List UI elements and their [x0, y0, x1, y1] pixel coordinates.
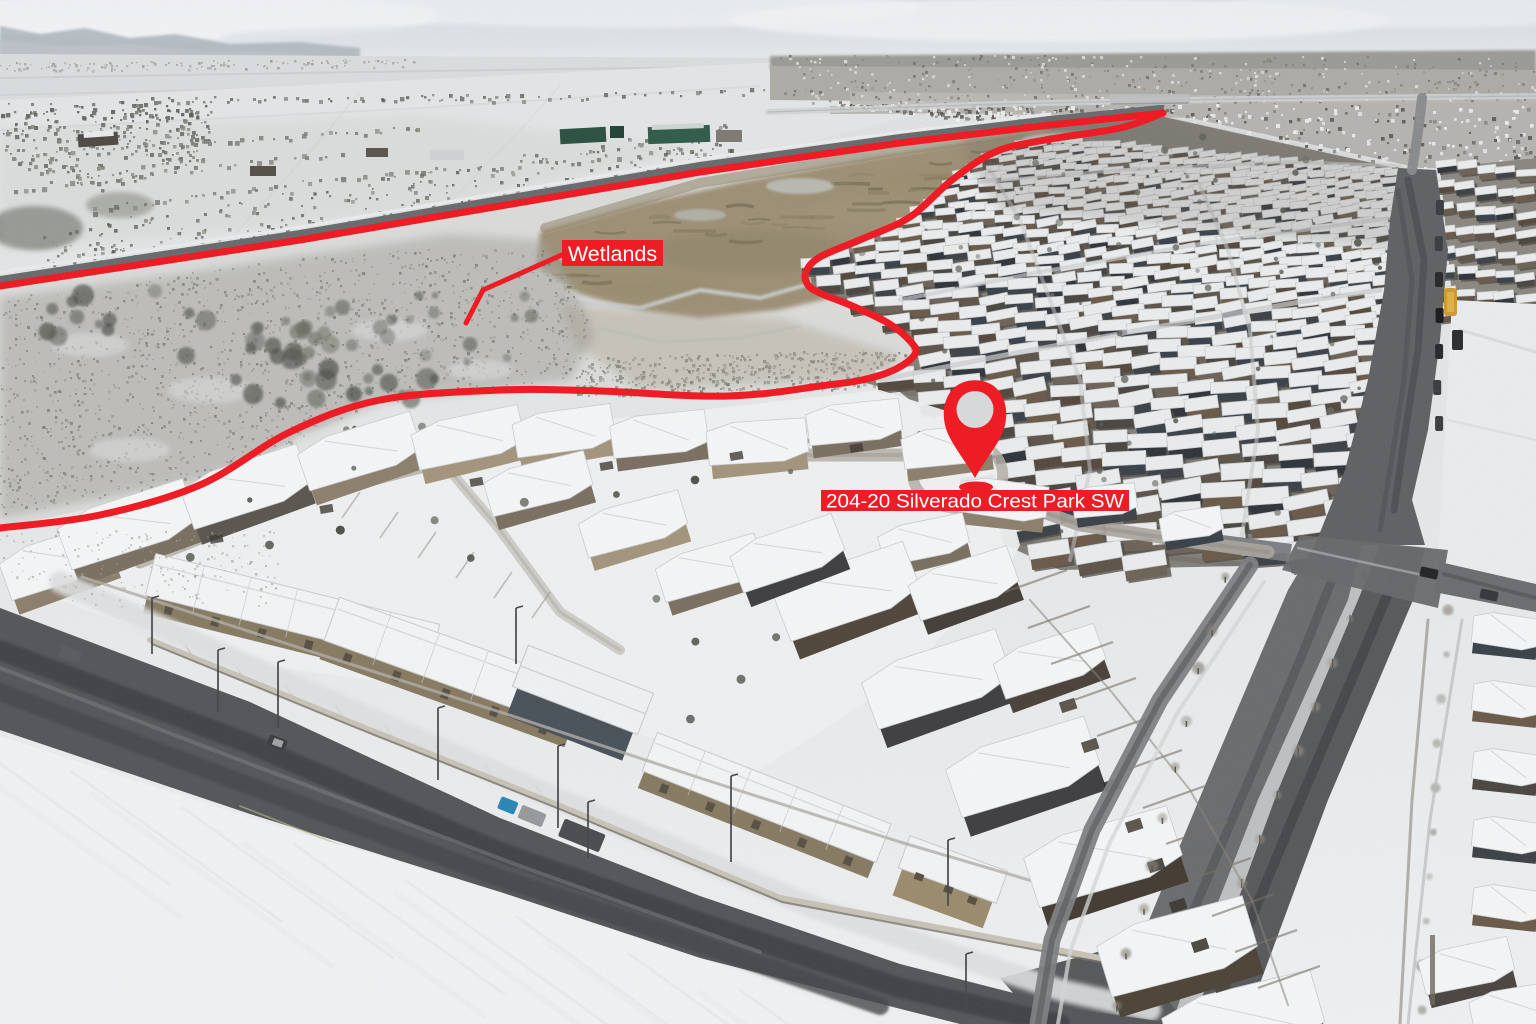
svg-text:204-20 Silverado Crest Park SW: 204-20 Silverado Crest Park SW	[826, 492, 1124, 513]
svg-text:Wetlands: Wetlands	[568, 242, 657, 266]
